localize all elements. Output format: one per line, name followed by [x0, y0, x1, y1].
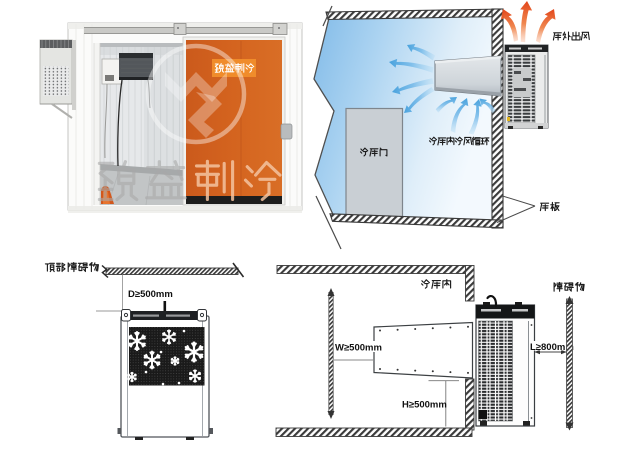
svg-text:D≥500mm: D≥500mm [128, 289, 173, 300]
svg-text:W≥500mm: W≥500mm [335, 343, 382, 354]
svg-text:H≥500mm: H≥500mm [402, 400, 447, 411]
